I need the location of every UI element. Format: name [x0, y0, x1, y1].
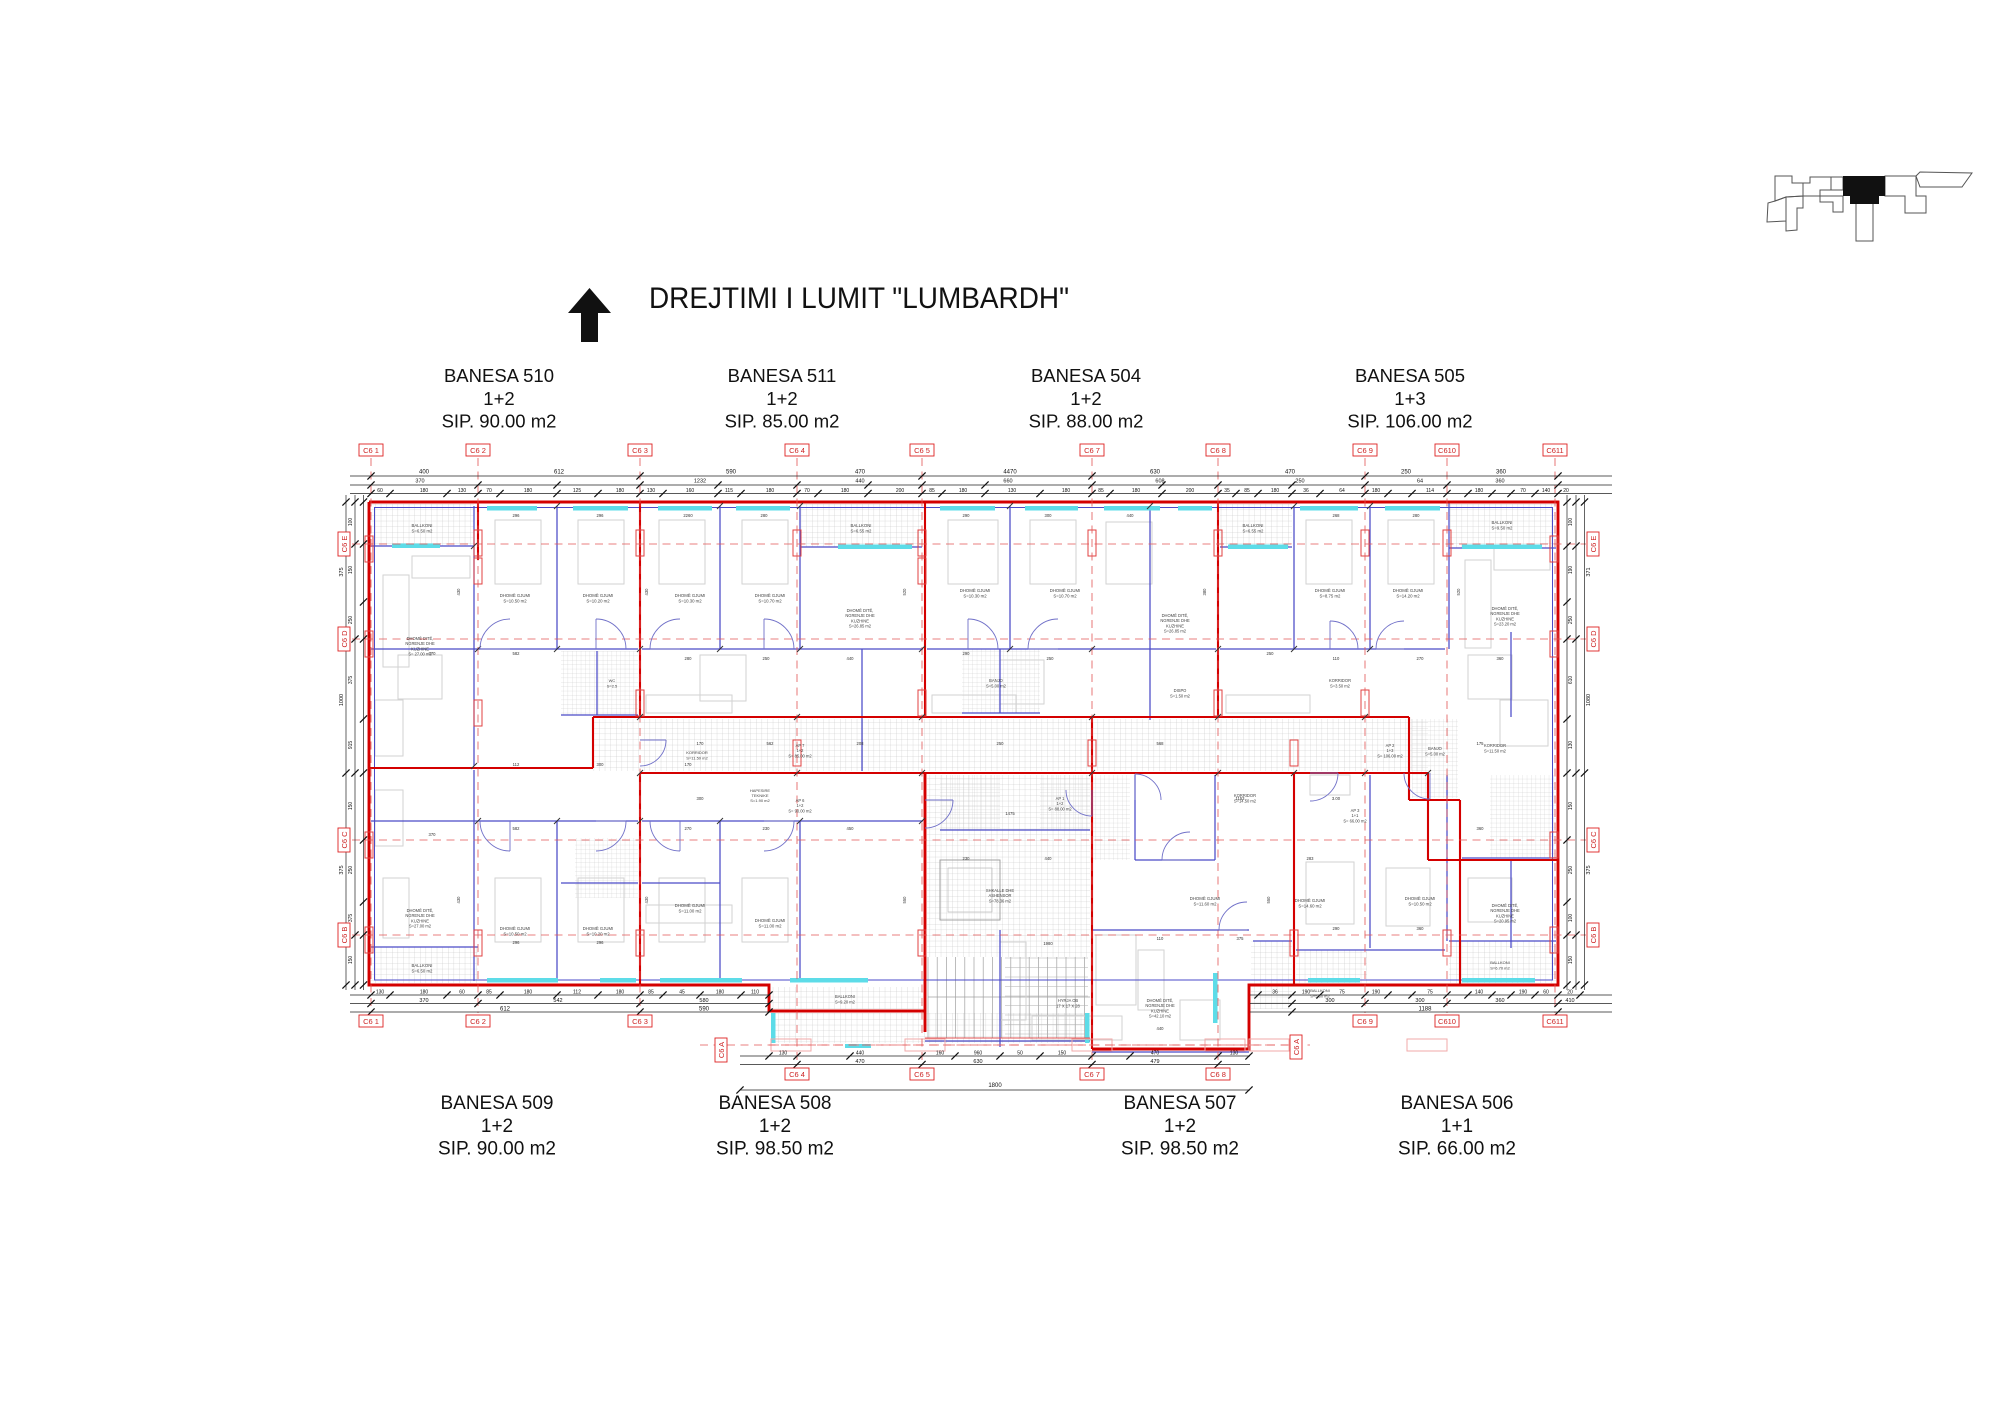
svg-text:470: 470	[1151, 1050, 1160, 1056]
svg-text:S=14.60 m2: S=14.60 m2	[1298, 904, 1322, 909]
svg-text:250: 250	[1401, 470, 1412, 476]
svg-text:208: 208	[857, 741, 865, 746]
svg-text:268: 268	[1333, 513, 1341, 518]
svg-text:915: 915	[348, 741, 354, 750]
svg-text:520: 520	[902, 588, 907, 596]
svg-text:180: 180	[616, 989, 625, 995]
svg-text:250: 250	[1267, 651, 1275, 656]
svg-text:360: 360	[1495, 998, 1504, 1004]
svg-text:BALLKONI: BALLKONI	[835, 994, 855, 999]
svg-text:DHOMË GJUMI: DHOMË GJUMI	[1393, 588, 1424, 593]
svg-text:S=23.20 m2: S=23.20 m2	[1494, 622, 1517, 627]
svg-text:C6 E: C6 E	[1589, 536, 1598, 553]
svg-text:BANESA 508: BANESA 508	[718, 1093, 831, 1114]
svg-text:C611: C611	[1546, 446, 1563, 455]
svg-text:C6 5: C6 5	[914, 446, 930, 455]
svg-text:DHOMË GJUMI: DHOMË GJUMI	[675, 593, 706, 598]
svg-text:440: 440	[1157, 1026, 1165, 1031]
svg-text:C6 B: C6 B	[1589, 927, 1598, 944]
svg-text:180: 180	[524, 488, 533, 494]
svg-text:BALLKONI: BALLKONI	[1490, 960, 1510, 965]
svg-text:250: 250	[1047, 656, 1055, 661]
svg-text:250: 250	[997, 741, 1005, 746]
svg-text:250: 250	[1568, 866, 1574, 875]
svg-text:110: 110	[751, 989, 759, 995]
svg-text:DHOMË GJUMI: DHOMË GJUMI	[500, 926, 531, 931]
svg-text:190: 190	[1519, 989, 1528, 995]
svg-text:430: 430	[456, 896, 461, 904]
svg-text:180: 180	[524, 989, 533, 995]
svg-text:S=10.50 m2: S=10.50 m2	[503, 932, 527, 937]
svg-text:430: 430	[644, 588, 649, 596]
svg-text:300: 300	[1045, 513, 1053, 518]
svg-text:610: 610	[1568, 676, 1574, 685]
svg-text:85: 85	[929, 488, 935, 494]
svg-text:KORRIDOR: KORRIDOR	[1234, 793, 1256, 798]
svg-text:S= 106.00 m2: S= 106.00 m2	[1377, 753, 1403, 758]
svg-text:470: 470	[855, 470, 866, 476]
svg-text:280: 280	[685, 656, 693, 661]
svg-text:DHOMË GJUMI: DHOMË GJUMI	[583, 593, 614, 598]
svg-text:250: 250	[1568, 616, 1574, 625]
svg-text:250: 250	[763, 656, 771, 661]
svg-text:110: 110	[1333, 656, 1340, 661]
svg-text:C6 A: C6 A	[1292, 1039, 1301, 1055]
svg-text:1000: 1000	[339, 694, 345, 706]
svg-text:375: 375	[1237, 936, 1245, 941]
svg-text:115: 115	[725, 488, 733, 494]
svg-text:440: 440	[856, 1050, 865, 1056]
svg-text:S=11.60 m2: S=11.60 m2	[1194, 902, 1218, 907]
svg-text:630: 630	[973, 1059, 982, 1065]
svg-text:296: 296	[597, 513, 605, 518]
svg-text:180: 180	[841, 488, 850, 494]
svg-text:S=11.00 m2: S=11.00 m2	[759, 924, 783, 929]
svg-text:100: 100	[1568, 518, 1574, 527]
svg-text:4470: 4470	[1003, 470, 1017, 476]
svg-text:230: 230	[963, 856, 971, 861]
svg-text:180: 180	[716, 989, 725, 995]
svg-text:130: 130	[779, 1050, 788, 1056]
svg-text:SIP. 85.00 m2: SIP. 85.00 m2	[725, 411, 840, 432]
svg-text:180: 180	[420, 989, 429, 995]
svg-text:45: 45	[679, 989, 685, 995]
svg-text:KORRIDOR: KORRIDOR	[1329, 678, 1351, 683]
svg-text:S=2.5: S=2.5	[607, 684, 618, 689]
svg-text:660: 660	[1003, 479, 1012, 485]
svg-text:130: 130	[647, 488, 656, 494]
svg-text:60: 60	[377, 488, 383, 494]
svg-text:85: 85	[1244, 488, 1250, 494]
svg-text:SIP. 88.00 m2: SIP. 88.00 m2	[1029, 411, 1144, 432]
svg-text:1+2: 1+2	[1070, 388, 1101, 409]
svg-text:C6 C: C6 C	[1589, 831, 1598, 849]
svg-text:290: 290	[963, 513, 971, 518]
svg-text:1+2: 1+2	[766, 388, 797, 409]
svg-text:370: 370	[415, 479, 424, 485]
svg-text:S=6.55 m2: S=6.55 m2	[851, 529, 873, 534]
svg-text:DISPO: DISPO	[1174, 688, 1187, 693]
svg-text:DHOMË GJUMI: DHOMË GJUMI	[1405, 896, 1436, 901]
svg-text:BANJO: BANJO	[1428, 746, 1442, 751]
svg-text:562: 562	[767, 741, 775, 746]
svg-text:S=9.20 m2: S=9.20 m2	[835, 1000, 856, 1005]
svg-text:C6 D: C6 D	[340, 630, 349, 648]
svg-text:130: 130	[458, 488, 467, 494]
svg-text:70: 70	[1520, 488, 1526, 494]
svg-text:S=11.00 m2: S=11.00 m2	[679, 909, 703, 914]
svg-text:300: 300	[597, 762, 605, 767]
svg-text:360: 360	[1495, 479, 1504, 485]
svg-text:180: 180	[1475, 488, 1484, 494]
svg-text:440: 440	[847, 656, 855, 661]
svg-text:C6 8: C6 8	[1210, 1070, 1226, 1079]
svg-text:S=6.50 m2: S=6.50 m2	[412, 969, 434, 974]
svg-text:590: 590	[699, 1006, 710, 1012]
svg-text:112: 112	[513, 762, 520, 767]
svg-text:36: 36	[1303, 488, 1309, 494]
svg-text:300: 300	[1325, 998, 1334, 1004]
svg-text:DHOMË GJUMI: DHOMË GJUMI	[1190, 896, 1221, 901]
svg-text:S=9.50 m2: S=9.50 m2	[1492, 526, 1514, 531]
svg-text:380: 380	[1202, 588, 1207, 596]
svg-text:35: 35	[1224, 488, 1230, 494]
svg-text:180: 180	[959, 488, 968, 494]
svg-text:130: 130	[1008, 488, 1017, 494]
svg-text:C6 7: C6 7	[1084, 1070, 1100, 1079]
svg-text:85: 85	[1098, 488, 1104, 494]
svg-text:S=10.30 m2: S=10.30 m2	[963, 594, 987, 599]
svg-text:371: 371	[1586, 567, 1592, 576]
svg-text:290: 290	[1333, 926, 1341, 931]
svg-text:250: 250	[348, 866, 354, 875]
svg-text:S= 88.00 m2: S= 88.00 m2	[1048, 806, 1072, 811]
svg-text:BALLKONI: BALLKONI	[411, 523, 432, 528]
svg-text:S=11.50 m2: S=11.50 m2	[686, 756, 708, 761]
svg-text:440: 440	[1127, 513, 1135, 518]
svg-text:400: 400	[419, 470, 430, 476]
svg-text:DHOMË GJUMI: DHOMË GJUMI	[1295, 898, 1326, 903]
svg-text:S=5.00 m2: S=5.00 m2	[1425, 752, 1446, 757]
svg-text:180: 180	[1062, 488, 1071, 494]
svg-text:C6 7: C6 7	[1084, 446, 1100, 455]
svg-text:C6 1: C6 1	[363, 446, 379, 455]
svg-text:DHOMË GJUMI: DHOMË GJUMI	[755, 918, 786, 923]
svg-text:1+3: 1+3	[1394, 388, 1425, 409]
svg-text:S=10.50 m2: S=10.50 m2	[1408, 902, 1432, 907]
svg-text:180: 180	[766, 488, 775, 494]
svg-text:590: 590	[726, 470, 737, 476]
svg-text:112: 112	[573, 989, 581, 995]
svg-text:125: 125	[573, 488, 582, 494]
svg-text:180: 180	[1271, 488, 1280, 494]
svg-text:370: 370	[429, 832, 437, 837]
svg-text:SIP. 98.50 m2: SIP. 98.50 m2	[716, 1139, 834, 1160]
svg-text:160: 160	[686, 488, 695, 494]
svg-text:C6 4: C6 4	[789, 1070, 805, 1079]
svg-text:S=6.50 m2: S=6.50 m2	[412, 529, 434, 534]
svg-text:S= 85.00 m2: S= 85.00 m2	[788, 753, 812, 758]
svg-text:75: 75	[1427, 989, 1433, 995]
svg-text:KORRIDOR: KORRIDOR	[1484, 743, 1506, 748]
svg-text:S=8.75 m2: S=8.75 m2	[1320, 594, 1342, 599]
svg-text:S=6.55 m2: S=6.55 m2	[1243, 529, 1265, 534]
svg-text:470: 470	[855, 1059, 864, 1065]
svg-text:170: 170	[697, 741, 705, 746]
svg-text:130: 130	[1230, 1050, 1239, 1056]
svg-text:BANESA 504: BANESA 504	[1031, 365, 1141, 386]
svg-text:360: 360	[1497, 656, 1505, 661]
svg-text:150: 150	[1568, 802, 1574, 811]
svg-text:430: 430	[644, 896, 649, 904]
svg-text:140: 140	[1542, 488, 1551, 494]
svg-text:280: 280	[1413, 513, 1421, 518]
svg-text:190: 190	[1568, 566, 1574, 575]
svg-text:410: 410	[1565, 998, 1574, 1004]
svg-text:DREJTIMI I LUMIT "LUMBARDH": DREJTIMI I LUMIT "LUMBARDH"	[649, 282, 1069, 315]
svg-text:BALLKONI: BALLKONI	[1491, 520, 1512, 525]
svg-text:S=10.50 m2: S=10.50 m2	[503, 599, 527, 604]
svg-text:S= 27.00 m2: S= 27.00 m2	[408, 652, 432, 657]
svg-text:85: 85	[486, 989, 492, 995]
svg-text:140: 140	[1475, 989, 1484, 995]
svg-text:S= 66.00 m2: S= 66.00 m2	[1343, 818, 1367, 823]
svg-text:450: 450	[847, 826, 855, 831]
svg-text:DHOMË GJUMI: DHOMË GJUMI	[1315, 588, 1346, 593]
svg-text:1800: 1800	[988, 1083, 1002, 1089]
svg-text:300: 300	[1415, 998, 1424, 1004]
svg-text:C6 C: C6 C	[340, 831, 349, 849]
svg-text:64: 64	[1417, 479, 1423, 485]
svg-text:440: 440	[855, 479, 864, 485]
svg-text:1232: 1232	[694, 479, 706, 485]
svg-text:BALLKONI: BALLKONI	[411, 963, 432, 968]
svg-text:520: 520	[1456, 588, 1461, 596]
svg-text:C6 2: C6 2	[470, 446, 486, 455]
svg-text:180: 180	[616, 488, 625, 494]
svg-text:180: 180	[420, 488, 429, 494]
svg-text:1+2: 1+2	[1164, 1116, 1196, 1137]
svg-text:580: 580	[699, 998, 708, 1004]
svg-text:1080: 1080	[1586, 694, 1592, 706]
svg-text:S=14.20 m2: S=14.20 m2	[1396, 594, 1420, 599]
svg-text:630: 630	[1150, 470, 1161, 476]
svg-text:S=3.50 m2: S=3.50 m2	[1330, 684, 1351, 689]
svg-text:DHOMË GJUMI: DHOMË GJUMI	[960, 588, 991, 593]
svg-text:1+1: 1+1	[1441, 1116, 1473, 1137]
svg-text:C6 D: C6 D	[1589, 630, 1598, 648]
svg-text:960: 960	[974, 1050, 983, 1056]
svg-text:SIP. 66.00 m2: SIP. 66.00 m2	[1398, 1139, 1516, 1160]
svg-text:S=11.50 m2: S=11.50 m2	[1484, 749, 1507, 754]
svg-text:S=20.95 m2: S=20.95 m2	[1494, 919, 1517, 924]
svg-text:612: 612	[554, 470, 565, 476]
svg-text:C610: C610	[1438, 1017, 1456, 1026]
svg-text:582: 582	[513, 651, 521, 656]
svg-text:1+2: 1+2	[759, 1116, 791, 1137]
svg-text:BANESA 510: BANESA 510	[444, 365, 554, 386]
svg-text:S= 90.00 m2: S= 90.00 m2	[788, 808, 812, 813]
svg-text:85: 85	[648, 989, 654, 995]
svg-text:DHOMË GJUMI: DHOMË GJUMI	[675, 903, 706, 908]
svg-text:50: 50	[1017, 1050, 1023, 1056]
svg-text:60: 60	[1543, 989, 1549, 995]
svg-text:C6 3: C6 3	[632, 1017, 648, 1026]
svg-text:S=10.70 m2: S=10.70 m2	[1053, 594, 1077, 599]
svg-text:3.00: 3.00	[1332, 796, 1341, 801]
svg-text:BANESA 505: BANESA 505	[1355, 365, 1465, 386]
svg-text:550: 550	[902, 896, 907, 904]
svg-text:375: 375	[348, 676, 354, 685]
svg-text:60: 60	[459, 989, 465, 995]
svg-text:75: 75	[1339, 989, 1345, 995]
svg-text:C6 B: C6 B	[340, 927, 349, 944]
svg-text:430: 430	[456, 588, 461, 596]
svg-text:C6 9: C6 9	[1357, 1017, 1373, 1026]
svg-text:C6 5: C6 5	[914, 1070, 930, 1079]
svg-text:70: 70	[486, 488, 492, 494]
svg-text:C6 3: C6 3	[632, 446, 648, 455]
svg-text:290: 290	[963, 651, 971, 656]
svg-text:C6 2: C6 2	[470, 1017, 486, 1026]
svg-text:375: 375	[339, 865, 345, 874]
svg-text:180: 180	[1132, 488, 1141, 494]
svg-text:375: 375	[348, 914, 354, 923]
svg-text:130: 130	[376, 989, 385, 995]
svg-text:250: 250	[1295, 479, 1304, 485]
svg-text:360: 360	[1477, 826, 1485, 831]
svg-text:114: 114	[1426, 488, 1434, 494]
svg-text:BANESA 509: BANESA 509	[440, 1093, 553, 1114]
svg-text:1475: 1475	[1005, 811, 1015, 816]
svg-text:180: 180	[1372, 488, 1381, 494]
svg-text:270: 270	[685, 826, 693, 831]
svg-text:BANESA 511: BANESA 511	[728, 365, 837, 386]
svg-text:479: 479	[1150, 1059, 1159, 1065]
svg-text:1980: 1980	[1043, 941, 1053, 946]
svg-text:70: 70	[804, 488, 810, 494]
svg-text:SIP. 106.00 m2: SIP. 106.00 m2	[1347, 411, 1472, 432]
svg-text:S=5.60 m2: S=5.60 m2	[1310, 994, 1330, 999]
svg-text:C6 9: C6 9	[1357, 446, 1373, 455]
svg-text:S=10.20 m2: S=10.20 m2	[586, 599, 610, 604]
svg-text:DHOMË GJUMI: DHOMË GJUMI	[583, 926, 614, 931]
svg-text:20: 20	[1563, 488, 1569, 494]
svg-text:200: 200	[896, 488, 905, 494]
svg-text:190: 190	[1302, 989, 1311, 995]
svg-text:DHOMË GJUMI: DHOMË GJUMI	[755, 593, 786, 598]
svg-text:283: 283	[1307, 856, 1315, 861]
svg-text:BANESA 506: BANESA 506	[1400, 1093, 1513, 1114]
svg-text:S=5.00 m2: S=5.00 m2	[986, 684, 1007, 689]
svg-text:1+2: 1+2	[483, 388, 514, 409]
svg-text:375: 375	[339, 567, 345, 576]
svg-text:KORRIDOR: KORRIDOR	[686, 750, 708, 755]
svg-text:608: 608	[1155, 479, 1164, 485]
svg-text:270: 270	[1417, 656, 1425, 661]
svg-text:S=27.00 m2: S=27.00 m2	[409, 924, 432, 929]
svg-text:WC: WC	[609, 678, 616, 683]
svg-text:S=26.85 m2: S=26.85 m2	[1164, 629, 1187, 634]
svg-text:296: 296	[597, 940, 605, 945]
svg-text:100: 100	[348, 518, 354, 527]
svg-text:C610: C610	[1438, 446, 1456, 455]
svg-text:BANJO: BANJO	[989, 678, 1003, 683]
svg-text:280: 280	[761, 513, 769, 518]
svg-text:S=10.20 m2: S=10.20 m2	[586, 932, 610, 937]
svg-text:S=14.50 m2: S=14.50 m2	[1234, 799, 1257, 804]
svg-text:S=1.50 m2: S=1.50 m2	[1170, 694, 1191, 699]
svg-text:150: 150	[348, 802, 354, 811]
svg-text:150: 150	[348, 566, 354, 575]
svg-text:S=42.10 m2: S=42.10 m2	[1149, 1014, 1172, 1019]
svg-text:S=78.36 m2: S=78.36 m2	[989, 898, 1012, 903]
svg-text:DHOMË GJUMI: DHOMË GJUMI	[1050, 588, 1081, 593]
svg-text:64: 64	[1339, 488, 1345, 494]
svg-text:100: 100	[1568, 914, 1574, 923]
svg-text:C6 8: C6 8	[1210, 446, 1226, 455]
svg-text:2260: 2260	[683, 513, 693, 518]
svg-text:370: 370	[419, 998, 428, 1004]
svg-text:BANESA 507: BANESA 507	[1123, 1093, 1236, 1114]
svg-text:1188: 1188	[1419, 1006, 1433, 1012]
svg-text:SIP. 98.50 m2: SIP. 98.50 m2	[1121, 1139, 1239, 1160]
svg-text:550: 550	[1266, 896, 1271, 904]
svg-text:150: 150	[1568, 956, 1574, 965]
svg-text:440: 440	[1045, 856, 1053, 861]
svg-text:360: 360	[1496, 470, 1507, 476]
svg-text:SIP. 90.00 m2: SIP. 90.00 m2	[442, 411, 557, 432]
svg-text:BALLKONI: BALLKONI	[850, 523, 871, 528]
svg-text:C6 A: C6 A	[717, 1042, 726, 1058]
svg-text:S=6.70 m2: S=6.70 m2	[1490, 966, 1510, 971]
svg-text:36: 36	[1272, 989, 1278, 995]
svg-text:1+2: 1+2	[481, 1116, 513, 1137]
svg-text:582: 582	[513, 826, 521, 831]
svg-text:542: 542	[553, 998, 562, 1004]
svg-text:C6 E: C6 E	[340, 536, 349, 553]
svg-text:S=1.90 m2: S=1.90 m2	[750, 798, 770, 803]
svg-text:C611: C611	[1546, 1017, 1563, 1026]
svg-text:300: 300	[697, 796, 705, 801]
svg-text:360: 360	[1417, 926, 1425, 931]
svg-text:612: 612	[500, 1006, 511, 1012]
svg-text:470: 470	[1285, 470, 1296, 476]
svg-text:150: 150	[348, 956, 354, 965]
svg-text:200: 200	[1186, 488, 1195, 494]
svg-text:230: 230	[763, 826, 771, 831]
svg-text:S=26.85 m2: S=26.85 m2	[849, 624, 872, 629]
svg-text:250: 250	[348, 616, 354, 625]
svg-text:DHOMË GJUMI: DHOMË GJUMI	[500, 593, 531, 598]
svg-text:S=10.30 m2: S=10.30 m2	[678, 599, 702, 604]
svg-text:296: 296	[513, 513, 521, 518]
svg-text:375: 375	[1586, 865, 1592, 874]
svg-text:296: 296	[513, 940, 521, 945]
svg-text:HYRJA OB: HYRJA OB	[1058, 998, 1079, 1003]
svg-text:17 X 17 X 28: 17 X 17 X 28	[1056, 1004, 1080, 1009]
svg-text:568: 568	[1157, 741, 1165, 746]
svg-text:S=10.70 m2: S=10.70 m2	[758, 599, 782, 604]
svg-text:SIP. 90.00 m2: SIP. 90.00 m2	[438, 1139, 556, 1160]
svg-text:110: 110	[1157, 936, 1164, 941]
svg-text:150: 150	[1058, 1050, 1067, 1056]
svg-text:130: 130	[1568, 741, 1574, 750]
svg-text:20: 20	[1567, 989, 1573, 995]
svg-text:C6 1: C6 1	[363, 1017, 379, 1026]
svg-text:170: 170	[685, 762, 693, 767]
svg-text:BALLKONI: BALLKONI	[1310, 988, 1330, 993]
